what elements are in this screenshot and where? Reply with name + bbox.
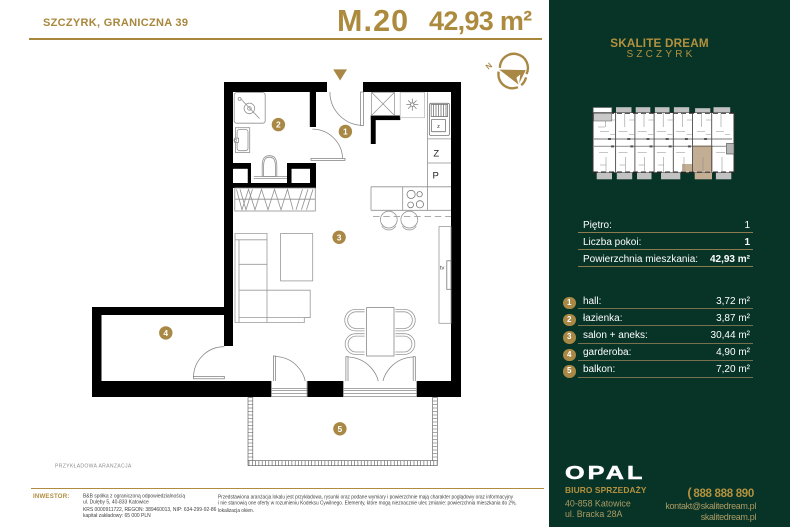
svg-text:5: 5: [338, 424, 343, 434]
svg-text:Z: Z: [433, 149, 439, 160]
svg-text:tv: tv: [440, 266, 445, 272]
svg-text:N: N: [484, 61, 494, 72]
svg-text:z: z: [437, 124, 440, 130]
svg-text:1: 1: [343, 127, 348, 137]
svg-text:2: 2: [276, 120, 281, 130]
svg-text:4: 4: [163, 328, 168, 338]
svg-text:3: 3: [337, 232, 342, 242]
svg-text:P: P: [433, 170, 439, 181]
